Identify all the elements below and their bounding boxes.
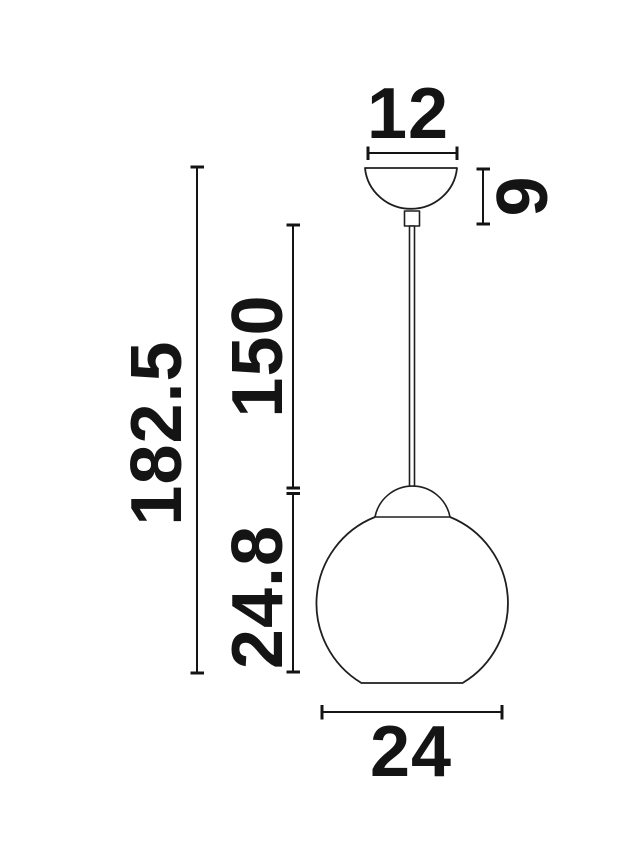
cord [410, 226, 415, 487]
dim-label-shade-height: 24.8 [218, 525, 298, 669]
canopy-stem [405, 211, 420, 226]
dim-label-canopy-width: 12 [367, 74, 449, 154]
lamp-drawing [316, 168, 507, 683]
globe-shade [316, 517, 507, 683]
dim-canopy-height: 9 [477, 169, 564, 224]
ceiling-canopy [365, 168, 457, 209]
dim-overall-height: 182.5 [117, 167, 204, 673]
dim-label-canopy-height: 9 [483, 175, 563, 216]
dim-canopy-width: 12 [367, 74, 457, 160]
dim-label-overall-height: 182.5 [117, 340, 197, 525]
dimension-drawing-canvas: 12 9 182.5 150 24.8 [0, 0, 640, 843]
dim-cord-length: 150 [218, 225, 300, 488]
dim-label-cord-length: 150 [218, 294, 298, 417]
dim-shade-diameter: 24 [322, 705, 502, 792]
dim-label-shade-diameter: 24 [370, 712, 452, 792]
pendant-lamp-dimension-drawing: 12 9 182.5 150 24.8 [0, 0, 640, 843]
dim-shade-height: 24.8 [218, 494, 300, 673]
shade-cap [375, 486, 450, 517]
